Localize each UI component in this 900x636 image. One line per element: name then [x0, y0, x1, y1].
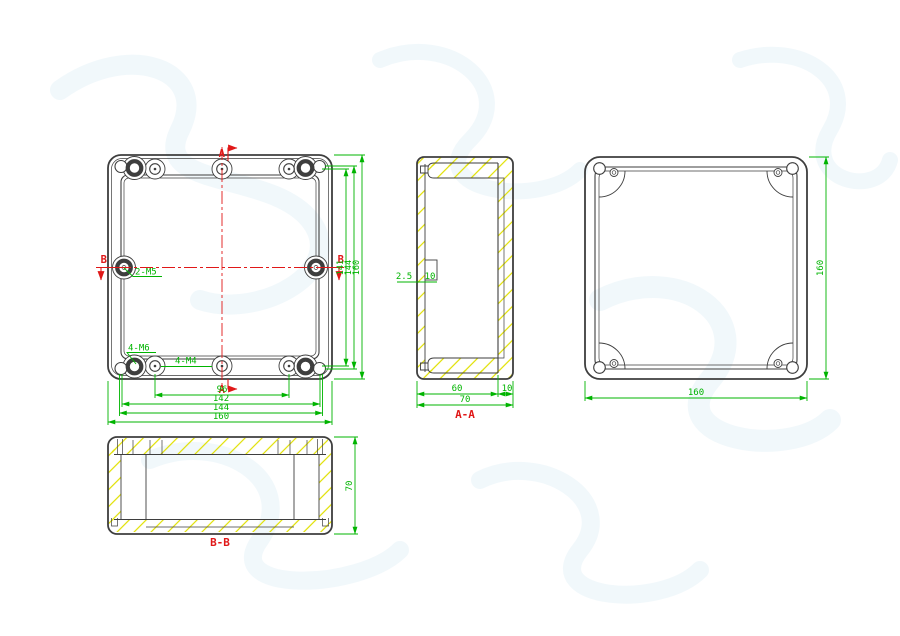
cover-view: 160 160: [585, 157, 829, 401]
section-bb-hatch: [108, 438, 332, 532]
m6-hole: [299, 161, 313, 175]
label-2-m5: 2-M5: [135, 268, 157, 278]
dim-cover-width: 160: [688, 388, 704, 398]
dim-60: 60: [452, 384, 463, 394]
section-aa-dims: 2.5 10 60 10 70 A-A: [396, 272, 513, 421]
label-4-m4: 4-M4: [175, 357, 197, 367]
section-aa-title: A-A: [455, 408, 475, 421]
watermark: [60, 52, 890, 595]
corner-hole: [115, 363, 127, 375]
section-bb-view: 70 B-B: [108, 437, 358, 549]
cover-corner-hole: [594, 362, 606, 374]
section-a-label-top: A: [219, 148, 226, 160]
dim-wall-2-5: 2.5: [396, 272, 412, 282]
dim-70-aa: 70: [460, 395, 471, 405]
dim-boss-10: 10: [425, 272, 436, 282]
section-bb-title: B-B: [210, 536, 230, 549]
m6-hole: [299, 360, 313, 374]
label-4-m6: 4-M6: [128, 344, 150, 354]
section-b-label-left: B: [101, 254, 107, 266]
dim-160-bottom: 160: [213, 412, 229, 422]
corner-hole: [314, 363, 326, 375]
m6-hole: [128, 161, 142, 175]
front-view-bottom-dims: 96 142 144 160: [108, 374, 332, 425]
dim-10: 10: [502, 384, 513, 394]
corner-hole: [115, 161, 127, 173]
dim-160-right: 160: [352, 260, 362, 275]
cover-corner-hole: [594, 163, 606, 175]
cover-corner-hole: [787, 362, 799, 374]
section-a-arrow-bottom: [228, 379, 237, 389]
front-view-hole-labels: 2-M5 4-M6 4-M4: [124, 268, 212, 367]
cover-corner-hole: [787, 163, 799, 175]
technical-drawing: A A B B 2-M5 4-M6 4-M4 96 142: [0, 0, 900, 636]
dim-cover-height: 160: [816, 260, 826, 276]
dim-bb-height: 70: [345, 481, 355, 492]
cover-view-geometry: [585, 157, 807, 379]
corner-hole: [314, 161, 326, 173]
drawing-canvas: A A B B 2-M5 4-M6 4-M4 96 142: [0, 0, 900, 636]
